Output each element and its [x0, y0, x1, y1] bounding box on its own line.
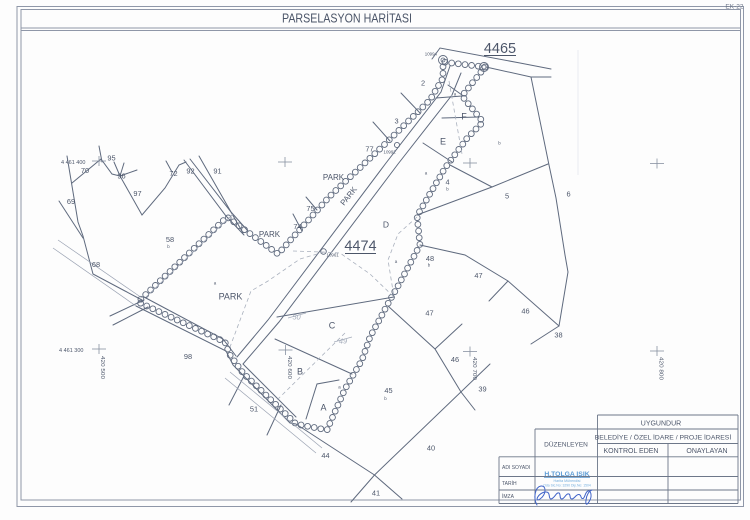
svg-text:97: 97 [133, 189, 141, 198]
svg-text:10992: 10992 [384, 150, 397, 155]
svg-text:PARK: PARK [219, 292, 243, 302]
svg-text:DÜZENLEYEN: DÜZENLEYEN [544, 441, 588, 449]
svg-text:47: 47 [425, 309, 433, 318]
svg-text:70: 70 [81, 166, 89, 175]
svg-text:45: 45 [384, 386, 392, 395]
svg-text:96: 96 [117, 172, 125, 181]
svg-text:KONTROL EDEN: KONTROL EDEN [604, 448, 659, 455]
svg-text:39: 39 [478, 385, 486, 394]
svg-text:69: 69 [67, 197, 75, 206]
svg-text:3: 3 [394, 117, 398, 126]
svg-text:A: A [320, 403, 326, 413]
svg-text:İMZA: İMZA [502, 493, 515, 500]
svg-text:H.TOLGA IŞIK: H.TOLGA IŞIK [544, 471, 589, 478]
svg-text:TARİH: TARİH [502, 480, 517, 487]
svg-text:77: 77 [365, 145, 373, 154]
svg-text:58: 58 [166, 235, 174, 244]
svg-text:420 700: 420 700 [471, 357, 477, 380]
svg-text:EK-22: EK-22 [725, 4, 743, 11]
svg-text:ADI SOYADI: ADI SOYADI [502, 465, 530, 471]
svg-text:6: 6 [566, 190, 570, 199]
svg-text:74: 74 [293, 222, 301, 231]
svg-text:47: 47 [474, 271, 482, 280]
svg-text:49: 49 [339, 337, 348, 346]
svg-text:91: 91 [213, 167, 221, 176]
svg-text:UYGUNDUR: UYGUNDUR [641, 421, 681, 428]
svg-text:4465: 4465 [484, 41, 516, 57]
svg-text:38: 38 [554, 331, 562, 340]
svg-text:Oda Sic.No: 3290 Dip.No: 1504: Oda Sic.No: 3290 Dip.No: 1504 [543, 484, 591, 488]
svg-text:420 500: 420 500 [99, 356, 105, 379]
svg-text:72: 72 [169, 169, 177, 178]
svg-text:46: 46 [451, 355, 459, 364]
svg-text:2: 2 [421, 79, 425, 88]
svg-text:420 600: 420 600 [286, 356, 292, 379]
svg-text:420 800: 420 800 [658, 357, 664, 380]
svg-text:Harita Mühendisi: Harita Mühendisi [554, 479, 581, 483]
svg-text:B: B [297, 367, 303, 377]
svg-text:E: E [440, 137, 446, 147]
svg-text:68: 68 [92, 260, 100, 269]
svg-text:4: 4 [445, 178, 449, 187]
svg-text:75: 75 [306, 204, 314, 213]
svg-text:4 461 300: 4 461 300 [59, 348, 83, 354]
svg-text:D: D [383, 220, 389, 230]
svg-text:41: 41 [372, 489, 380, 498]
svg-text:ONAYLAYAN: ONAYLAYAN [686, 448, 727, 455]
svg-text:F: F [461, 112, 467, 122]
svg-text:50: 50 [292, 313, 301, 322]
svg-text:C: C [329, 321, 336, 331]
svg-text:40: 40 [427, 444, 435, 453]
svg-text:98: 98 [184, 352, 192, 361]
svg-text:95: 95 [107, 154, 115, 163]
svg-text:5: 5 [505, 192, 509, 201]
svg-text:4474: 4474 [344, 239, 376, 255]
svg-text:92: 92 [186, 167, 194, 176]
svg-text:46: 46 [521, 307, 529, 316]
svg-text:PARK: PARK [259, 230, 281, 239]
svg-text:PARK: PARK [323, 173, 345, 182]
svg-text:PARSELASYON HARİTASI: PARSELASYON HARİTASI [282, 12, 412, 26]
svg-text:51: 51 [250, 405, 258, 414]
svg-text:BELEDİYE / ÖZEL İDARE / PROJE: BELEDİYE / ÖZEL İDARE / PROJE İDARESİ [595, 433, 732, 442]
svg-text:44: 44 [321, 451, 329, 460]
